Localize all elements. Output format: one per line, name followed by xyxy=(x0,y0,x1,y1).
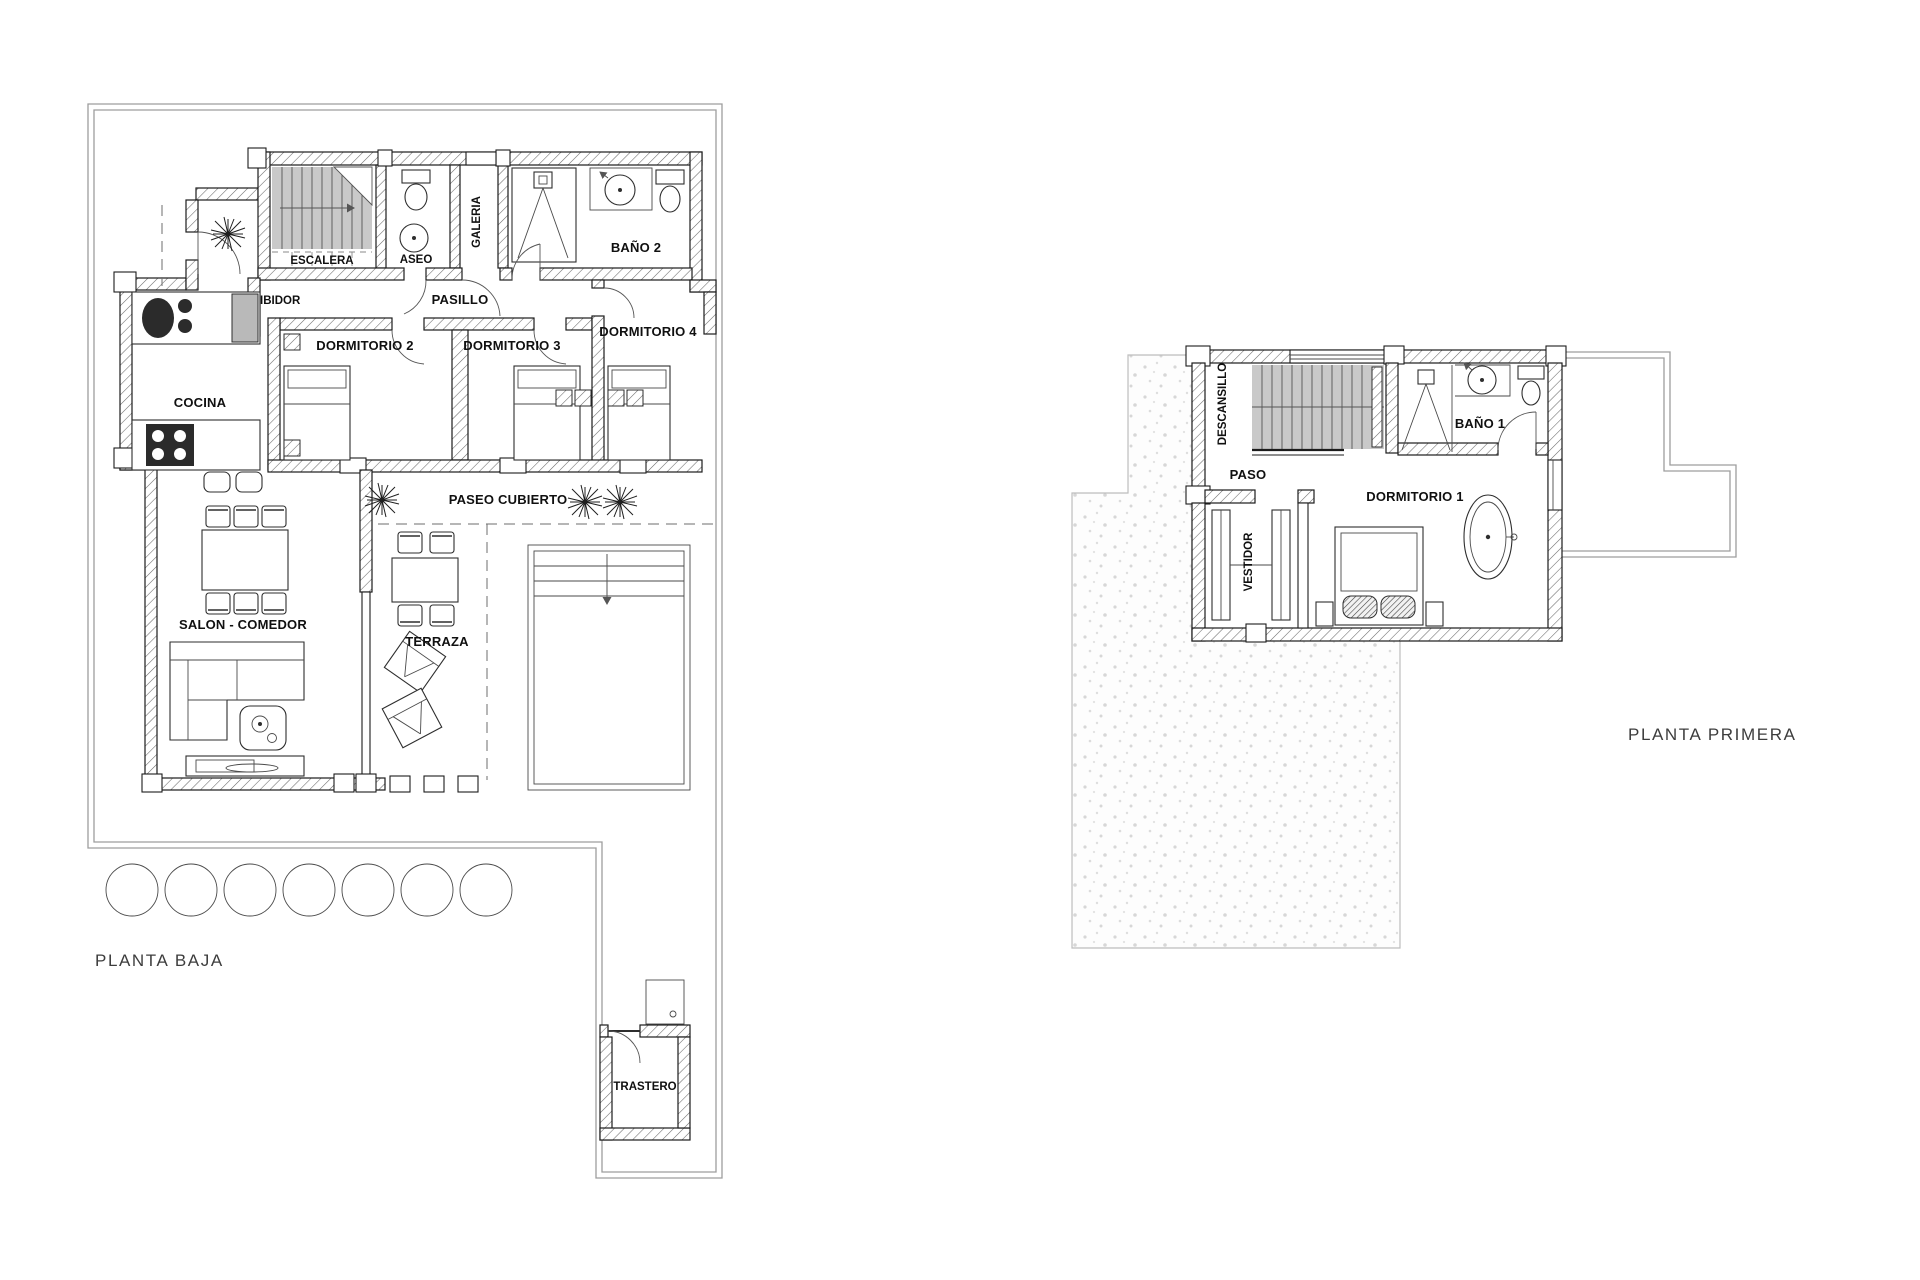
wardrobe-icon xyxy=(284,440,300,456)
chair-icon xyxy=(262,593,286,614)
room-label-cocina: COCINA xyxy=(174,395,227,410)
kitchen-sink-icon xyxy=(142,298,174,338)
bush-icon xyxy=(106,864,158,916)
nightstand-icon xyxy=(1316,602,1333,626)
room-label-escalera: ESCALERA xyxy=(290,255,353,267)
room-descansillo: DESCANSILLO xyxy=(1217,363,1384,455)
hob-icon xyxy=(146,424,194,466)
side-table xyxy=(240,706,286,750)
floor-plan-sheet: ESCALERA ASEO GALERIA xyxy=(0,0,1920,1280)
stool-icon xyxy=(236,472,262,492)
chair-icon xyxy=(234,593,258,614)
chair-icon xyxy=(398,532,422,553)
bush-icon xyxy=(224,864,276,916)
room-label-dormitorio1: DORMITORIO 1 xyxy=(1366,489,1464,504)
plant-icon xyxy=(211,217,245,251)
bushes-row xyxy=(106,864,512,916)
plan-title-planta-primera: PLANTA PRIMERA xyxy=(1628,725,1797,744)
wardrobe-icon xyxy=(284,334,300,350)
room-cocina: COCINA xyxy=(132,292,262,492)
room-label-bano2: BAÑO 2 xyxy=(611,240,661,255)
bush-icon xyxy=(165,864,217,916)
room-escalera: ESCALERA xyxy=(272,167,372,267)
planta-primera-plan: DESCANSILLO PASO BAÑO 1 VES xyxy=(1072,346,1797,948)
plant-icon xyxy=(603,485,637,519)
pool xyxy=(528,545,690,790)
room-terraza: TERRAZA xyxy=(382,532,469,748)
room-dormitorio2: DORMITORIO 2 xyxy=(284,330,424,460)
chair-icon xyxy=(234,506,258,527)
tv-console xyxy=(186,756,304,776)
plant-icon xyxy=(568,485,602,519)
room-label-terraza: TERRAZA xyxy=(405,634,469,649)
toilet-icon xyxy=(656,170,684,184)
dining-table xyxy=(202,530,288,590)
bed-icon xyxy=(514,366,580,460)
room-label-descansillo: DESCANSILLO xyxy=(1217,363,1229,445)
room-aseo: ASEO xyxy=(400,170,433,314)
plant-icon xyxy=(365,483,399,517)
room-vestidor: VESTIDOR xyxy=(1212,510,1290,620)
room-label-trastero: TRASTERO xyxy=(613,1081,676,1093)
room-label-dormitorio2: DORMITORIO 2 xyxy=(316,338,414,353)
chair-icon xyxy=(206,593,230,614)
fridge-icon xyxy=(232,294,258,342)
room-label-bano1: BAÑO 1 xyxy=(1455,416,1505,431)
lounge-chair-icon xyxy=(382,688,442,748)
room-label-aseo: ASEO xyxy=(400,254,433,266)
shower-icon xyxy=(1418,370,1434,384)
chair-icon xyxy=(430,532,454,553)
room-dormitorio3: DORMITORIO 3 xyxy=(463,330,591,460)
room-dormitorio4: DORMITORIO 4 xyxy=(599,288,697,460)
bed-icon xyxy=(608,366,670,460)
room-label-vestidor: VESTIDOR xyxy=(1243,532,1255,591)
chair-icon xyxy=(262,506,286,527)
patio-table xyxy=(392,558,458,602)
floor-plan-canvas: ESCALERA ASEO GALERIA xyxy=(0,0,1920,1280)
bush-icon xyxy=(460,864,512,916)
room-label-paso: PASO xyxy=(1230,467,1267,482)
chair-icon xyxy=(430,605,454,626)
pillow-icon xyxy=(1381,596,1415,618)
room-label-dormitorio4: DORMITORIO 4 xyxy=(599,324,697,339)
room-salon-comedor: SALON - COMEDOR xyxy=(170,506,307,776)
chair-icon xyxy=(398,605,422,626)
room-label-salon: SALON - COMEDOR xyxy=(179,617,307,632)
bush-icon xyxy=(401,864,453,916)
utility-pad xyxy=(646,980,684,1024)
plan-title-planta-baja: PLANTA BAJA xyxy=(95,951,224,970)
nightstand-icon xyxy=(1426,602,1443,626)
room-label-galeria: GALERIA xyxy=(471,196,483,248)
bush-icon xyxy=(342,864,394,916)
toilet-bowl-icon xyxy=(405,184,427,210)
room-trastero: TRASTERO xyxy=(600,980,690,1140)
room-label-dormitorio3: DORMITORIO 3 xyxy=(463,338,561,353)
room-label-pasillo: PASILLO xyxy=(432,292,489,307)
room-bano1: BAÑO 1 xyxy=(1402,363,1544,452)
bush-icon xyxy=(283,864,335,916)
balcony-outline xyxy=(1562,352,1736,557)
room-bano2: BAÑO 2 xyxy=(512,168,684,280)
pillow-icon xyxy=(1343,596,1377,618)
room-dormitorio1: DORMITORIO 1 xyxy=(1316,489,1517,626)
toilet-icon xyxy=(402,170,430,183)
stool-icon xyxy=(204,472,230,492)
toilet-icon xyxy=(1518,366,1544,379)
room-label-paseo: PASEO CUBIERTO xyxy=(449,492,568,507)
chair-icon xyxy=(206,506,230,527)
planta-baja-plan: ESCALERA ASEO GALERIA xyxy=(88,104,722,1178)
